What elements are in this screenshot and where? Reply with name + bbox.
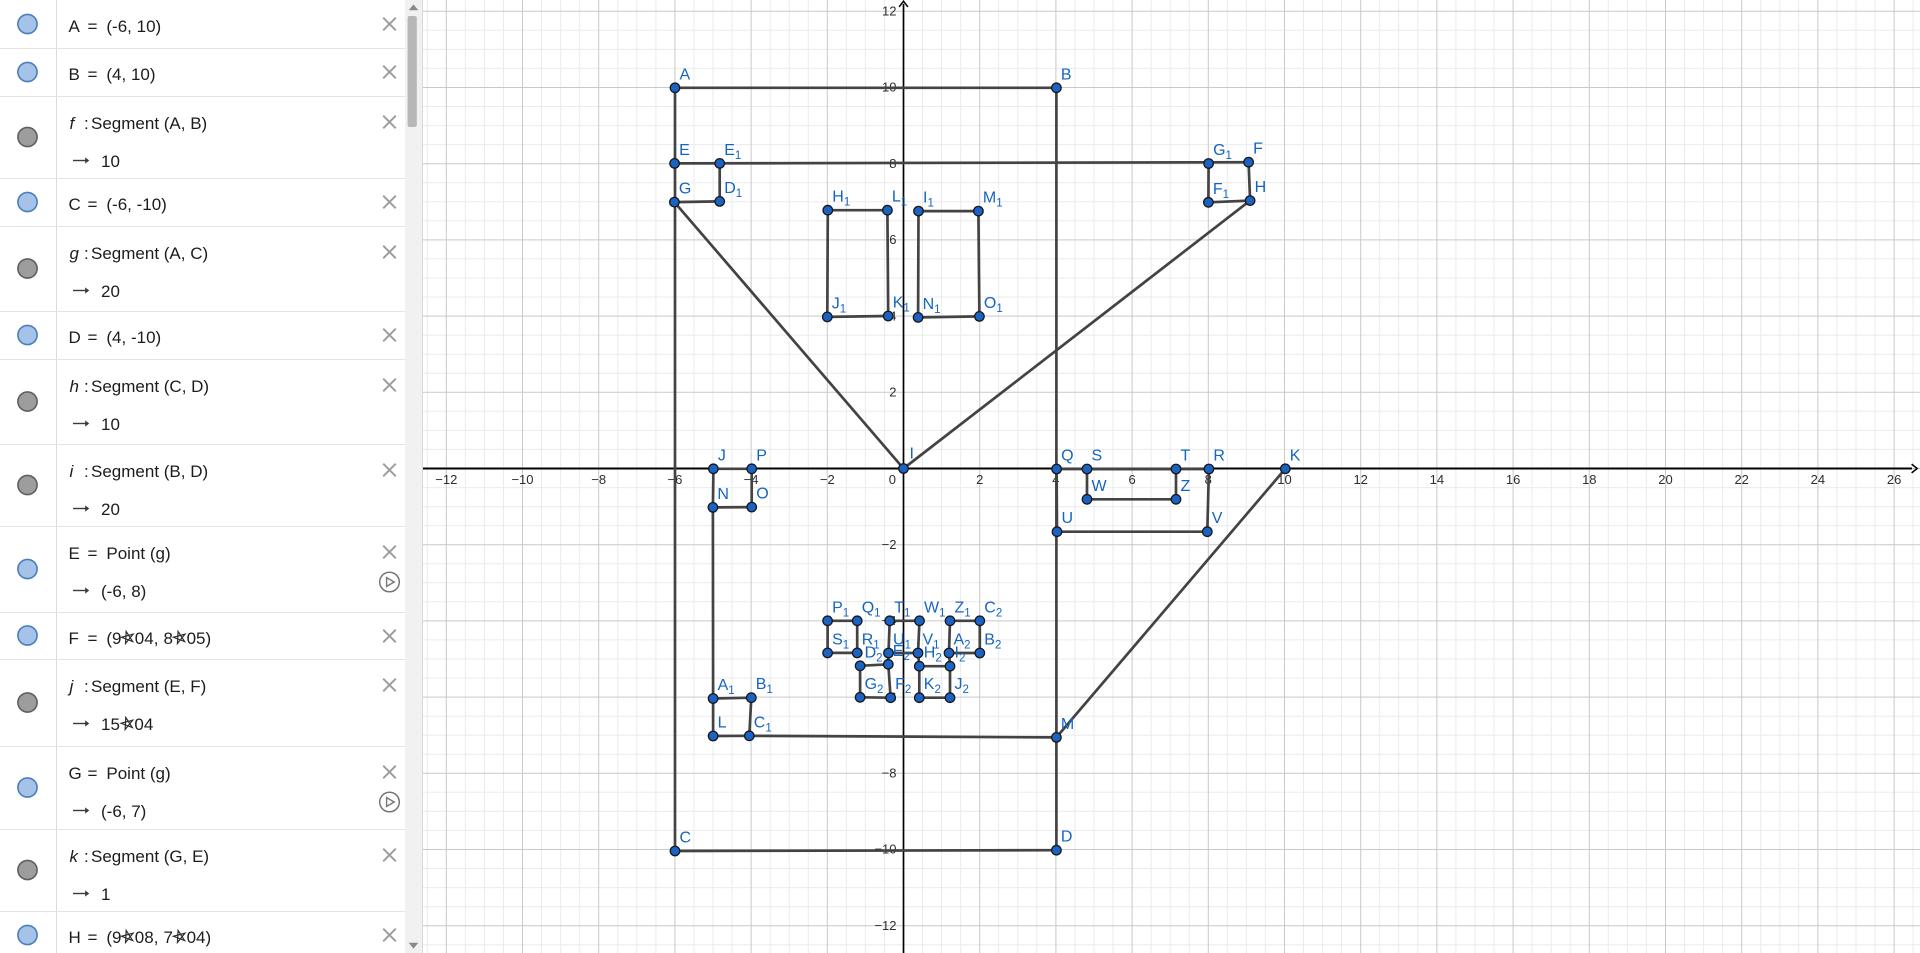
svg-text:05): 05)	[187, 629, 212, 648]
svg-text:−12: −12	[874, 918, 896, 933]
svg-text:Q: Q	[1061, 448, 1073, 465]
svg-text:−2: −2	[820, 472, 835, 487]
svg-text:E: E	[69, 544, 80, 563]
svg-text:(4, -10): (4, -10)	[106, 328, 161, 347]
svg-text:Segment (E, F): Segment (E, F)	[91, 677, 206, 696]
svg-text:Segment (A, B): Segment (A, B)	[91, 114, 207, 133]
svg-text:(9: (9	[106, 928, 121, 947]
svg-text:h: h	[70, 377, 79, 396]
svg-text:J: J	[718, 447, 726, 464]
svg-text:=: =	[88, 629, 98, 648]
svg-text:(-6, 7): (-6, 7)	[101, 802, 146, 821]
svg-text:20: 20	[1658, 472, 1672, 487]
svg-text:=: =	[88, 17, 98, 36]
svg-text::: :	[84, 244, 89, 263]
svg-text:20: 20	[101, 282, 120, 301]
svg-text:20: 20	[101, 500, 120, 519]
svg-text:P: P	[756, 447, 767, 464]
svg-text:04: 04	[134, 715, 153, 734]
svg-text:D: D	[69, 328, 81, 347]
svg-text:1: 1	[101, 885, 110, 904]
svg-text:L: L	[718, 715, 727, 732]
svg-text:A: A	[680, 66, 691, 83]
svg-text:H: H	[1255, 179, 1267, 196]
svg-text:S: S	[1092, 448, 1103, 465]
svg-text:10: 10	[101, 415, 120, 434]
svg-text:Segment (B, D): Segment (B, D)	[91, 462, 208, 481]
svg-text:0: 0	[889, 472, 896, 487]
svg-text:24: 24	[1811, 472, 1825, 487]
svg-text:2: 2	[976, 472, 983, 487]
svg-text:V: V	[1212, 510, 1223, 527]
svg-text:g: g	[70, 244, 80, 263]
svg-text:=: =	[88, 928, 98, 947]
svg-text:12: 12	[1353, 472, 1367, 487]
svg-text:−8: −8	[591, 472, 606, 487]
svg-text:(-6, -10): (-6, -10)	[106, 195, 166, 214]
svg-text:16: 16	[1506, 472, 1520, 487]
svg-text:C: C	[680, 830, 692, 847]
svg-text::: :	[84, 114, 89, 133]
svg-text:6: 6	[1128, 472, 1135, 487]
svg-text:Z: Z	[1181, 478, 1191, 495]
svg-text:R: R	[1213, 448, 1225, 465]
svg-text::: :	[84, 462, 89, 481]
svg-text:=: =	[88, 544, 98, 563]
svg-text:Segment (A, C): Segment (A, C)	[91, 244, 208, 263]
svg-text:G: G	[69, 764, 82, 783]
svg-text:Segment (C, D): Segment (C, D)	[91, 377, 209, 396]
svg-text:Point (g): Point (g)	[106, 764, 170, 783]
svg-text:(-6, 10): (-6, 10)	[106, 17, 161, 36]
svg-text:(9: (9	[106, 629, 121, 648]
svg-text:Point (g): Point (g)	[106, 544, 170, 563]
svg-text:U: U	[1062, 510, 1074, 527]
svg-text:=: =	[88, 764, 98, 783]
svg-text:14: 14	[1430, 472, 1444, 487]
svg-text:−10: −10	[511, 472, 533, 487]
svg-text:10: 10	[101, 152, 120, 171]
svg-text:G: G	[679, 181, 691, 198]
svg-text:I: I	[910, 446, 914, 463]
svg-text:B: B	[69, 65, 80, 84]
svg-text:−2: −2	[882, 537, 897, 552]
svg-text:M: M	[1061, 716, 1074, 733]
svg-text:=: =	[88, 195, 98, 214]
svg-text:T: T	[1181, 448, 1191, 465]
svg-text::: :	[84, 377, 89, 396]
svg-text:22: 22	[1734, 472, 1748, 487]
svg-text:K: K	[1290, 447, 1301, 464]
svg-text:−8: −8	[882, 766, 897, 781]
svg-text:7: 7	[164, 928, 173, 947]
svg-text:2: 2	[889, 385, 896, 400]
svg-text:H: H	[69, 928, 81, 947]
svg-text:W: W	[1092, 478, 1108, 495]
svg-text:=: =	[88, 65, 98, 84]
svg-text:04): 04)	[187, 928, 212, 947]
svg-text:C: C	[69, 195, 81, 214]
svg-text:Segment (G, E): Segment (G, E)	[91, 847, 209, 866]
svg-text:8: 8	[164, 629, 173, 648]
svg-text:(-6, 8): (-6, 8)	[101, 582, 146, 601]
svg-text:6: 6	[889, 232, 896, 247]
svg-text:A: A	[69, 17, 81, 36]
svg-text::: :	[84, 847, 89, 866]
svg-text:08,: 08,	[135, 928, 159, 947]
svg-text:12: 12	[882, 4, 896, 19]
svg-text:F: F	[1253, 141, 1263, 158]
svg-text:18: 18	[1582, 472, 1596, 487]
svg-text::: :	[84, 677, 89, 696]
svg-text:D: D	[1061, 829, 1073, 846]
svg-text:N: N	[717, 486, 729, 503]
svg-text:E: E	[679, 142, 690, 159]
svg-text:=: =	[88, 328, 98, 347]
svg-text:26: 26	[1887, 472, 1901, 487]
svg-text:F: F	[69, 629, 79, 648]
svg-text:(4, 10): (4, 10)	[106, 65, 155, 84]
svg-text:O: O	[756, 486, 768, 503]
svg-text:B: B	[1061, 66, 1072, 83]
svg-text:−12: −12	[435, 472, 457, 487]
svg-text:15: 15	[101, 715, 120, 734]
svg-text:04,: 04,	[135, 629, 159, 648]
